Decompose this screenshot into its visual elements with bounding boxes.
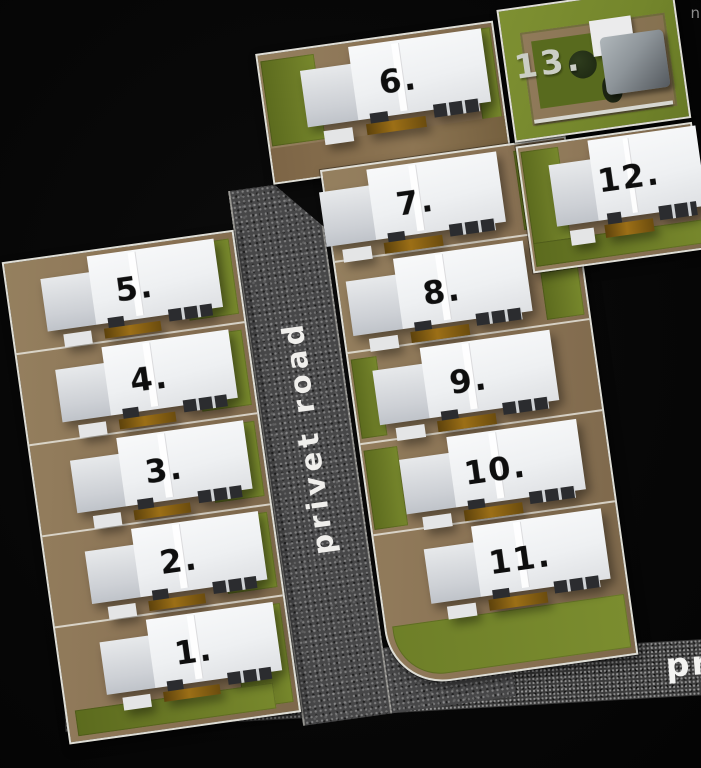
house-4: 4. xyxy=(63,330,237,432)
plot-11: 11. xyxy=(373,502,636,686)
house-7: 7. xyxy=(327,152,505,257)
site-plan-group: privet road 5. 4. xyxy=(0,0,701,768)
watermark-fragment: n xyxy=(690,4,700,22)
plot-10-lawn xyxy=(363,446,408,530)
house-11: 11. xyxy=(431,509,609,614)
house-12: 12. xyxy=(554,126,701,239)
plot-13: 13. xyxy=(496,0,691,143)
house-8: 8. xyxy=(353,241,531,346)
house-10: 10. xyxy=(407,419,585,524)
existing-building-roof xyxy=(599,29,670,95)
house-5: 5. xyxy=(48,239,222,341)
house-9: 9. xyxy=(380,330,558,435)
site-plan-image: priv privet road 5. 4. xyxy=(0,0,701,768)
privet-road-label: privet road xyxy=(275,318,342,558)
plot-12: 12. xyxy=(516,122,701,274)
house-3: 3. xyxy=(78,421,252,523)
house-2: 2. xyxy=(92,511,266,613)
